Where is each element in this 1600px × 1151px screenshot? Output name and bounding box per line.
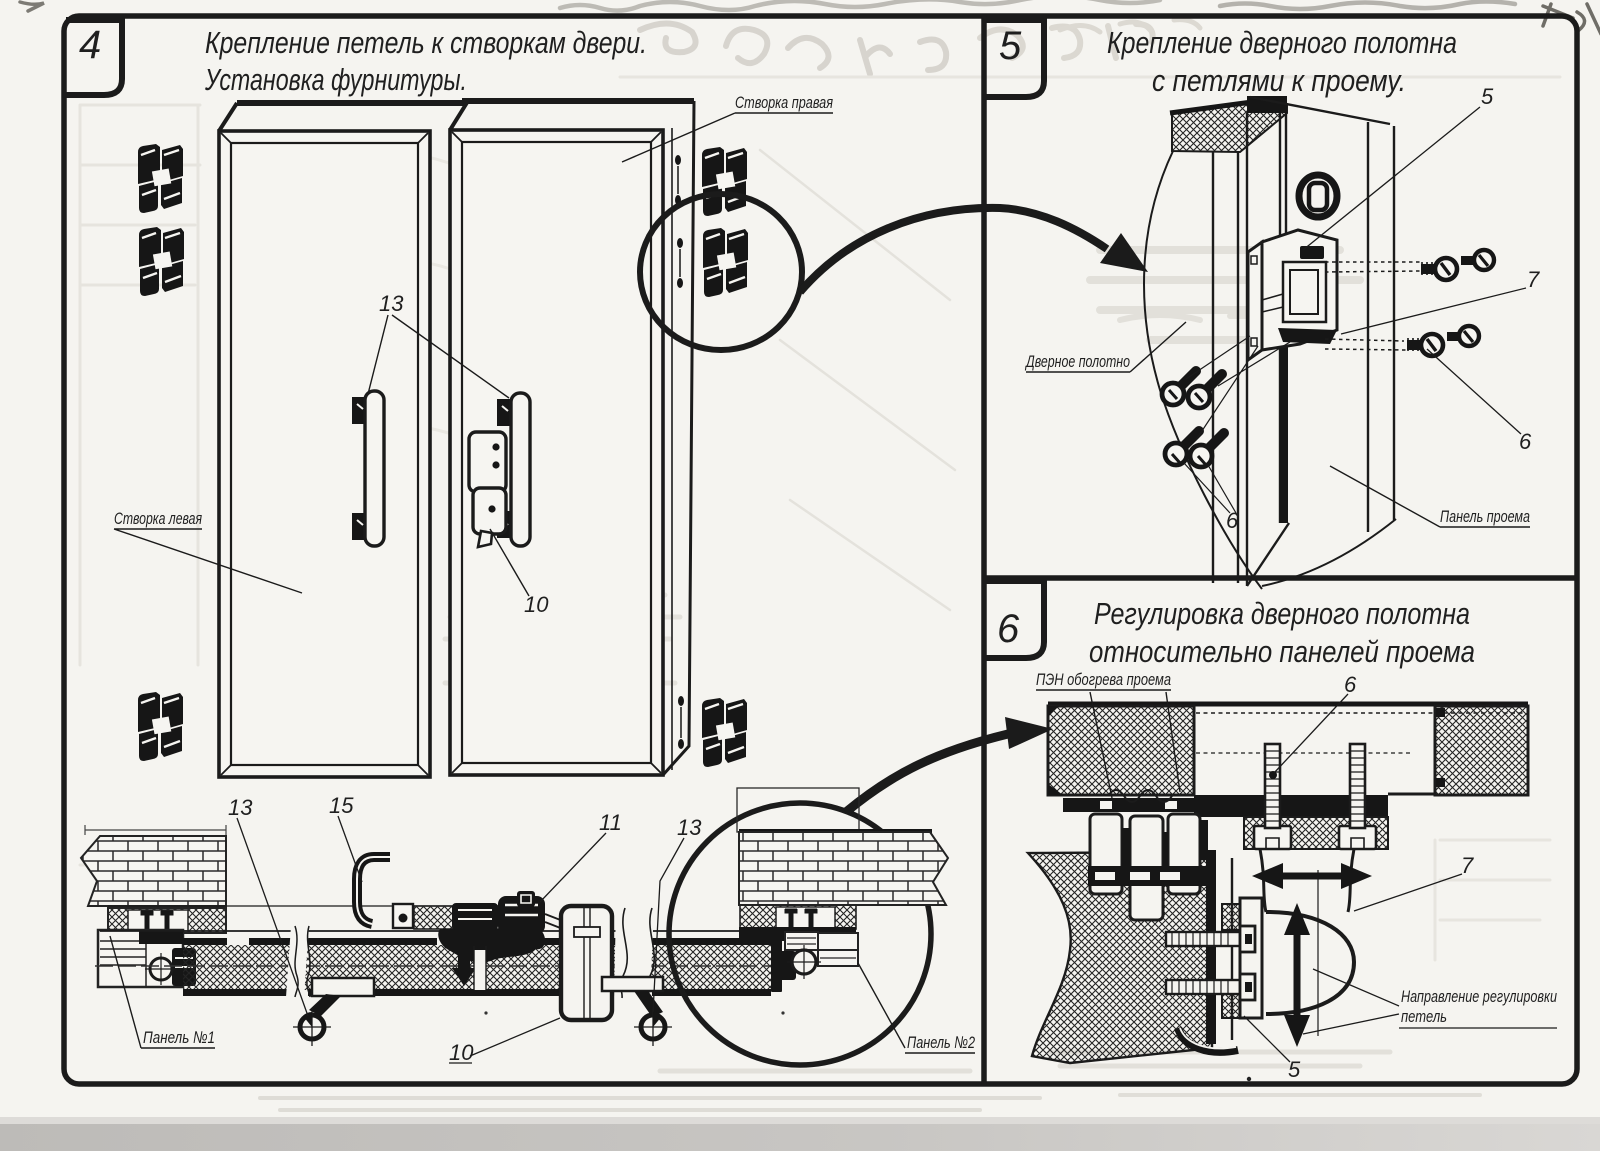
- svg-text:Панель №1: Панель №1: [143, 1028, 215, 1047]
- svg-text:относительно панелей проема: относительно панелей проема: [1089, 634, 1475, 669]
- svg-text:Установка фурнитуры.: Установка фурнитуры.: [204, 62, 467, 97]
- svg-text:6: 6: [997, 607, 1020, 651]
- svg-text:11: 11: [599, 810, 622, 835]
- svg-text:Регулировка дверного полотна: Регулировка дверного полотна: [1094, 596, 1470, 631]
- svg-text:5: 5: [999, 24, 1022, 68]
- svg-text:Дверное полотно: Дверное полотно: [1025, 352, 1130, 371]
- svg-text:7: 7: [1461, 853, 1474, 878]
- svg-text:6: 6: [1519, 429, 1532, 454]
- svg-text:Створка левая: Створка левая: [114, 509, 202, 528]
- svg-text:Крепление дверного полотна: Крепление дверного полотна: [1107, 25, 1457, 60]
- svg-text:10: 10: [524, 592, 549, 617]
- svg-text:5: 5: [1481, 84, 1494, 109]
- svg-text:Панель проема: Панель проема: [1440, 507, 1530, 526]
- svg-text:Направление регулировки: Направление регулировки: [1401, 987, 1557, 1006]
- svg-text:Панель №2: Панель №2: [907, 1033, 975, 1052]
- svg-text:7: 7: [1527, 267, 1540, 292]
- svg-text:10: 10: [449, 1040, 474, 1065]
- svg-text:6: 6: [1344, 672, 1357, 697]
- svg-text:6: 6: [1226, 508, 1239, 533]
- svg-text:с петлями к проему.: с петлями к проему.: [1152, 63, 1406, 98]
- svg-text:15: 15: [329, 793, 354, 818]
- svg-text:петель: петель: [1401, 1007, 1447, 1026]
- svg-text:13: 13: [379, 291, 404, 316]
- svg-text:Створка правая: Створка правая: [735, 93, 833, 112]
- svg-text:13: 13: [677, 815, 702, 840]
- svg-text:ПЭН обогрева проема: ПЭН обогрева проема: [1036, 670, 1171, 689]
- svg-text:4: 4: [79, 23, 101, 67]
- svg-text:Крепление петель к створкам дв: Крепление петель к створкам двери.: [205, 25, 647, 60]
- svg-text:13: 13: [228, 795, 253, 820]
- svg-text:5: 5: [1288, 1057, 1301, 1082]
